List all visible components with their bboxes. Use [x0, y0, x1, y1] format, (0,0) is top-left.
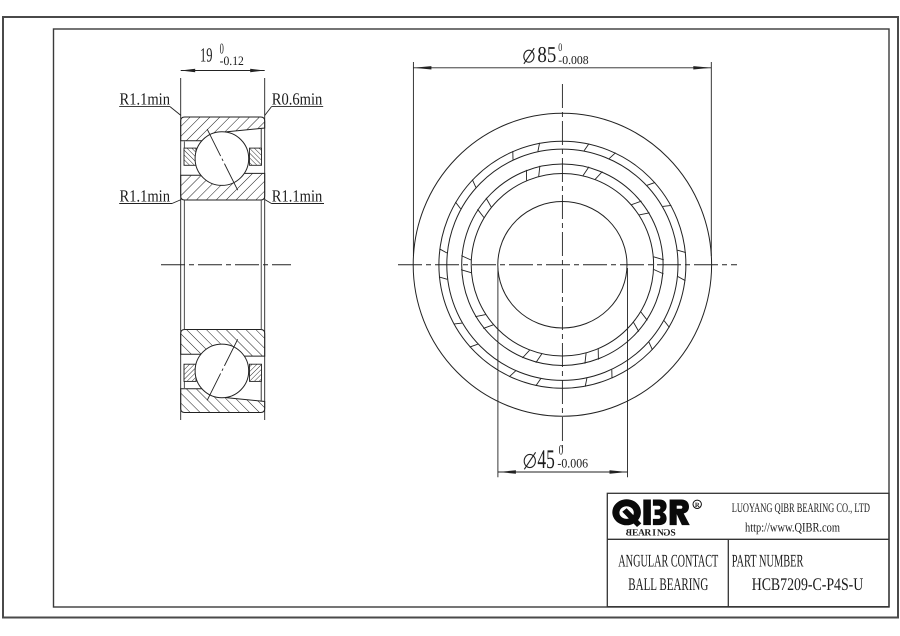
svg-text:PART NUMBER: PART NUMBER: [732, 551, 804, 571]
svg-text:45: 45: [537, 444, 554, 474]
svg-text:HCB7209-C-P4S-U: HCB7209-C-P4S-U: [752, 574, 864, 594]
svg-text:BALL BEARING: BALL BEARING: [628, 574, 708, 594]
svg-text:http://www.QIBR.com: http://www.QIBR.com: [745, 520, 840, 535]
svg-text:S: S: [670, 528, 675, 539]
svg-text:-0.006: -0.006: [557, 456, 588, 471]
svg-text:R0.6min: R0.6min: [272, 90, 323, 109]
svg-text:ANGULAR CONTACT: ANGULAR CONTACT: [618, 551, 718, 571]
svg-text:LUOYANG QIBR BEARING CO., LTD: LUOYANG QIBR BEARING CO., LTD: [732, 500, 870, 515]
svg-text:R: R: [644, 528, 652, 539]
svg-text:G: G: [662, 528, 670, 539]
svg-text:I: I: [652, 528, 656, 539]
svg-text:-0.12: -0.12: [220, 54, 244, 68]
svg-text:85: 85: [537, 42, 556, 67]
svg-text:R1.1min: R1.1min: [120, 187, 171, 206]
svg-text:R1.1min: R1.1min: [272, 187, 323, 206]
svg-text:N: N: [657, 528, 664, 539]
svg-text:R: R: [695, 502, 700, 509]
svg-text:R1.1min: R1.1min: [120, 90, 171, 109]
svg-text:19: 19: [200, 45, 212, 67]
svg-text:-0.008: -0.008: [558, 53, 588, 67]
